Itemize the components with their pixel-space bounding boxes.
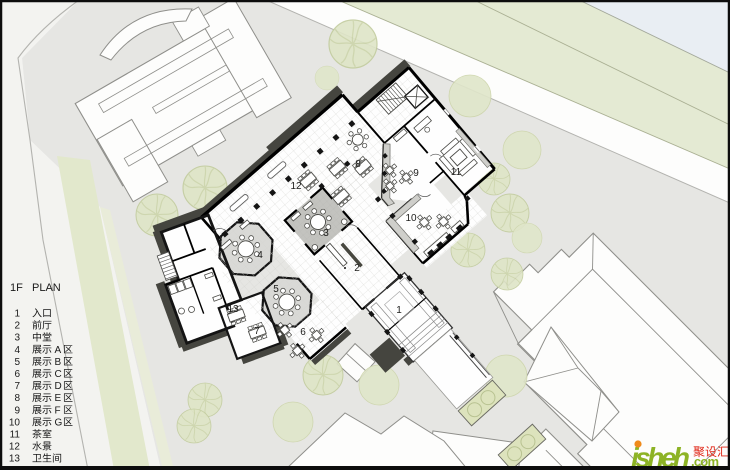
svg-text:7: 7 (14, 381, 20, 392)
svg-text:11: 11 (451, 167, 462, 178)
svg-text:6: 6 (14, 369, 20, 380)
svg-text:8: 8 (355, 159, 361, 170)
svg-text:13: 13 (9, 454, 21, 465)
svg-text:10: 10 (9, 417, 21, 428)
svg-text:12: 12 (290, 181, 302, 192)
svg-text:5: 5 (14, 357, 20, 368)
svg-text:2: 2 (354, 263, 360, 274)
svg-text:F: F (55, 405, 61, 416)
svg-text:11: 11 (10, 430, 21, 441)
svg-text:B: B (55, 357, 62, 368)
svg-text:7: 7 (254, 326, 260, 337)
svg-text:C: C (55, 369, 62, 380)
svg-text:3: 3 (323, 228, 329, 239)
svg-text:A: A (55, 345, 62, 356)
svg-text:E: E (55, 393, 62, 404)
svg-text:1: 1 (396, 305, 402, 316)
svg-text:9: 9 (413, 168, 419, 179)
svg-text:5: 5 (273, 284, 279, 295)
svg-text:10: 10 (405, 213, 417, 224)
svg-text:PLAN: PLAN (32, 282, 61, 294)
svg-text:6: 6 (300, 327, 306, 338)
svg-text:D: D (55, 381, 62, 392)
svg-text:2: 2 (14, 321, 20, 332)
svg-text:1: 1 (14, 309, 20, 320)
svg-text:8: 8 (14, 393, 20, 404)
svg-text:4: 4 (14, 345, 20, 356)
svg-text:3: 3 (14, 333, 20, 344)
svg-text:13: 13 (227, 304, 239, 315)
svg-text:9: 9 (14, 405, 20, 416)
svg-text:G: G (55, 417, 63, 428)
svg-text:12: 12 (9, 442, 21, 453)
svg-text:4: 4 (257, 250, 263, 261)
svg-text:1F: 1F (10, 282, 23, 294)
